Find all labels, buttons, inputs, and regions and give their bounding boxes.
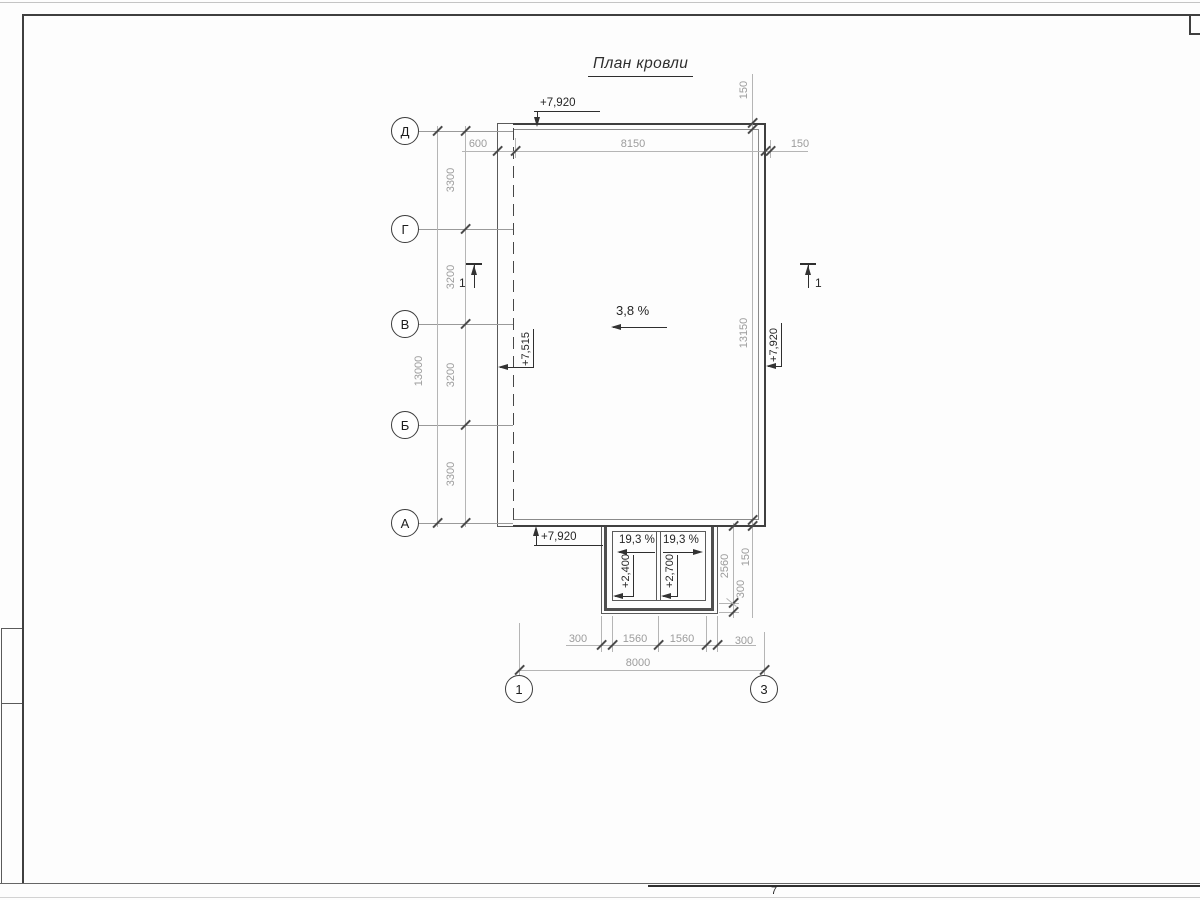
dim-bottom-300-right: 300 (729, 634, 759, 648)
axis-bubble-3: 3 (750, 675, 778, 703)
canopy-divider-line-1 (656, 531, 657, 601)
roof-overhang-left-edge (497, 123, 498, 527)
dim-line-left-overall (437, 126, 438, 527)
dim-line-left-segments (465, 126, 466, 527)
slope-main-line (613, 327, 667, 328)
dim-ext-b5 (717, 616, 718, 652)
dim-top-8150: 8150 (603, 137, 663, 151)
axis-label-a: А (401, 516, 410, 531)
drawing-sheet: 7 План кровли Д Г В Б А 13000 3300 3200 … (0, 0, 1200, 900)
level-top-underline (534, 111, 600, 112)
canopy-inner-top (612, 531, 706, 532)
level-canopy-left-arrow (613, 593, 623, 599)
roof-overhang-bottom-connector (497, 526, 513, 527)
level-bottom-underline (534, 545, 603, 546)
axis-label-1: 1 (515, 682, 522, 697)
dim-ext-b4 (706, 616, 707, 652)
level-right-leader-v (781, 323, 782, 367)
section-right-arrow (805, 265, 811, 275)
dim-right-top-150: 150 (736, 60, 752, 120)
frame-left-line (22, 14, 24, 884)
axis-bubble-a: А (391, 509, 419, 537)
roof-bottom-edge (513, 525, 766, 527)
dim-bottom-300-left: 300 (563, 632, 593, 646)
frame-corner-box-v (1189, 14, 1191, 34)
canopy-inner-right (705, 531, 706, 601)
titleblock-top-line (648, 885, 1200, 887)
canopy-wall-bottom (604, 608, 714, 611)
dim-bottom-8000: 8000 (618, 656, 658, 670)
axis-label-b: Б (401, 418, 410, 433)
dim-bottom-1560-left: 1560 (618, 632, 652, 646)
dim-left-seg-4: 3300 (443, 444, 459, 504)
canopy-outer-left (601, 527, 602, 614)
dim-ext-b2 (612, 616, 613, 652)
dim-right-13150: 13150 (736, 303, 752, 363)
frame-bottom-line (0, 883, 1200, 884)
axis-bubble-b: Б (391, 411, 419, 439)
level-canopy-right-leader-v (677, 555, 678, 597)
roof-top-edge (513, 123, 766, 125)
margin-divider-2 (2, 703, 22, 704)
slope-main-label: 3,8 % (616, 304, 649, 318)
level-left-arrow (498, 364, 508, 370)
dim-ext-b3 (658, 616, 659, 652)
dim-left-seg-1: 3300 (443, 150, 459, 210)
dim-line-bottom-overall (519, 670, 764, 671)
level-canopy-left-leader-v (633, 555, 634, 597)
axis-label-3: 3 (760, 682, 767, 697)
slope-canopy-left-label: 19,3 % (619, 533, 655, 547)
section-left-arrow (471, 265, 477, 275)
canopy-wall-right (711, 527, 714, 611)
sheet-note: 7 (771, 884, 777, 898)
section-left-label: 1 (459, 276, 466, 290)
axis-bubble-d: Д (391, 117, 419, 145)
section-right-label: 1 (815, 276, 822, 290)
dim-top-600: 600 (458, 137, 498, 151)
frame-corner-box-h (1189, 33, 1200, 35)
axis-bubble-1: 1 (505, 675, 533, 703)
canopy-outer-bottom (601, 613, 718, 614)
page-edge-bottom (0, 897, 1200, 898)
page-edge-top (0, 2, 1200, 3)
level-canopy-right: +2,700 (662, 541, 678, 601)
level-right-arrow (766, 363, 776, 369)
dim-ext-b1 (601, 616, 602, 652)
roof-overhang-top-connector (497, 123, 513, 124)
roof-bottom-inner-line (513, 519, 759, 520)
slope-canopy-right-label: 19,3 % (663, 533, 699, 547)
dim-canopy-2560: 2560 (717, 536, 733, 596)
dim-left-overall: 13000 (411, 341, 427, 401)
level-top: +7,920 (540, 96, 576, 110)
frame-top-line (22, 14, 1200, 16)
dim-top-150: 150 (780, 137, 820, 151)
level-canopy-right-arrow (661, 593, 671, 599)
axis-label-d: Д (401, 124, 410, 139)
slope-canopy-right-arrow (693, 549, 703, 555)
canopy-inner-left (612, 531, 613, 601)
margin-column-line (1, 628, 2, 884)
roof-top-inner-line (513, 129, 759, 130)
roof-right-inner-line (758, 129, 759, 520)
canopy-divider-line-2 (660, 531, 661, 601)
axis-label-g: Г (401, 222, 408, 237)
canopy-wall-left (604, 527, 607, 611)
slope-main-arrow (611, 324, 621, 330)
drawing-title: План кровли (588, 55, 693, 77)
axis-label-v: В (401, 317, 410, 332)
dim-canopy-300: 300 (733, 559, 749, 619)
axis-bubble-v: В (391, 310, 419, 338)
axis-bubble-g: Г (391, 215, 419, 243)
roof-hidden-left-edge (513, 128, 514, 520)
level-bottom: +7,920 (541, 530, 577, 544)
margin-divider-1 (2, 628, 22, 629)
slope-canopy-left-arrow (617, 549, 627, 555)
level-left: +7,515 (518, 319, 534, 379)
level-bottom-arrow (533, 526, 539, 536)
dim-line-bottom-segments (566, 645, 756, 646)
level-left-leader-v (533, 329, 534, 368)
level-top-arrow (534, 117, 540, 127)
dim-left-seg-2: 3200 (443, 247, 459, 307)
dim-left-seg-3: 3200 (443, 345, 459, 405)
dim-bottom-1560-right: 1560 (665, 632, 699, 646)
